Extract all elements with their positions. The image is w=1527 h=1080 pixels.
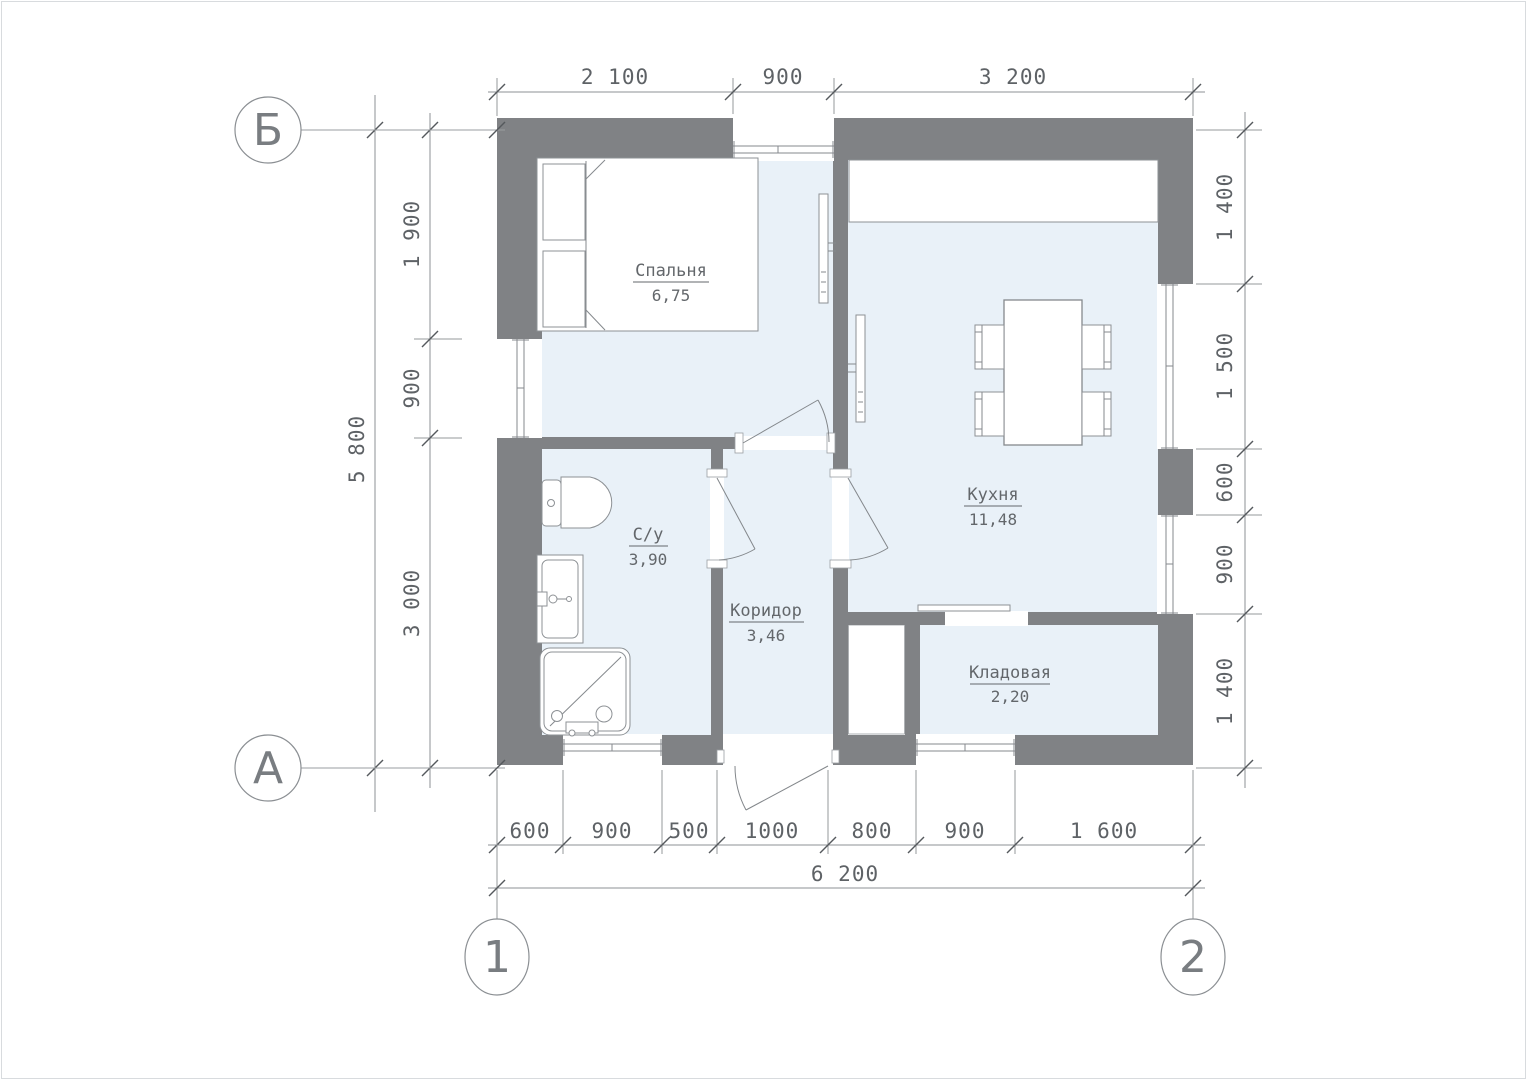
wall-closet-storage xyxy=(905,625,920,735)
dim-top-1: 2 100 xyxy=(581,65,649,89)
bed xyxy=(537,158,758,331)
corridor-area: 3,46 xyxy=(747,626,786,645)
toilet xyxy=(542,477,612,528)
bed-pillow xyxy=(543,164,585,240)
dim-bottom-total: 6 200 xyxy=(811,862,879,886)
window-left xyxy=(496,339,542,438)
chair xyxy=(975,325,1004,369)
entry-closet xyxy=(849,625,905,734)
floor-plan-canvas: Спальня 6,75 Кухня 11,48 С/у 3,90 Коридо… xyxy=(0,0,1527,1080)
kitchen-counter xyxy=(849,160,1158,222)
dim-bottom-5: 800 xyxy=(852,819,893,843)
grid-marker-col-left: 1 xyxy=(465,919,529,995)
bathroom-name: С/у xyxy=(633,525,664,545)
window-right-kitchen-small xyxy=(1157,515,1194,614)
grid-number-left: 1 xyxy=(483,932,511,983)
dining-table xyxy=(1004,300,1082,445)
window-top xyxy=(733,117,834,161)
window-right-kitchen-large xyxy=(1157,284,1194,449)
kitchen-area: 11,48 xyxy=(969,510,1017,529)
entrance-door xyxy=(717,734,839,810)
dim-bottom-4: 1000 xyxy=(745,819,800,843)
window-bottom-bathroom xyxy=(563,734,662,766)
chair xyxy=(1082,392,1111,436)
grid-marker-col-right: 2 xyxy=(1161,919,1225,995)
dim-left-1: 1 900 xyxy=(400,200,424,268)
dim-left-total: 5 800 xyxy=(345,415,369,483)
corridor-floor xyxy=(723,449,833,735)
bathroom-sink xyxy=(537,555,583,643)
bedroom-name: Спальня xyxy=(635,261,707,281)
dim-right-2: 1 500 xyxy=(1213,332,1237,400)
chair xyxy=(1082,325,1111,369)
grid-marker-row-top: Б xyxy=(235,97,505,163)
dimension-chain-left: 1 900 900 3 000 5 800 xyxy=(345,95,462,812)
dim-bottom-1: 600 xyxy=(510,819,551,843)
shower xyxy=(540,648,630,736)
dim-top-2: 900 xyxy=(763,65,804,89)
bed-pillow xyxy=(543,251,585,327)
storage-area: 2,20 xyxy=(991,687,1030,706)
grid-number-right: 2 xyxy=(1179,932,1207,983)
grid-letter-bottom: А xyxy=(253,743,283,794)
chair xyxy=(975,392,1004,436)
dim-bottom-3: 500 xyxy=(669,819,710,843)
kitchen-name: Кухня xyxy=(967,485,1018,505)
dimension-chain-top: 2 100 900 3 200 xyxy=(488,65,1205,116)
dim-bottom-2: 900 xyxy=(592,819,633,843)
dim-right-4: 900 xyxy=(1213,544,1237,585)
dim-right-5: 1 400 xyxy=(1213,657,1237,725)
dim-left-2: 900 xyxy=(400,368,424,409)
bathroom-area: 3,90 xyxy=(629,550,668,569)
storage-name: Кладовая xyxy=(969,663,1051,683)
corridor-name: Коридор xyxy=(730,601,802,621)
window-bottom-storage xyxy=(916,734,1015,766)
dim-top-3: 3 200 xyxy=(979,65,1047,89)
wall-top xyxy=(497,118,1193,160)
dim-right-3: 600 xyxy=(1213,462,1237,503)
dim-bottom-6: 900 xyxy=(945,819,986,843)
dimension-chain-right: 1 400 1 500 600 900 1 400 xyxy=(1196,112,1262,788)
bedroom-area: 6,75 xyxy=(652,286,691,305)
dimension-chain-bottom: 600 900 500 1000 800 900 1 600 xyxy=(488,770,1205,854)
wall-left xyxy=(497,118,542,765)
dim-right-1: 1 400 xyxy=(1213,173,1237,241)
dim-left-3: 3 000 xyxy=(400,569,424,637)
grid-marker-row-bottom: А xyxy=(235,735,505,801)
kitchen-floor xyxy=(848,160,1158,612)
dim-bottom-7: 1 600 xyxy=(1070,819,1138,843)
grid-letter-top: Б xyxy=(253,105,283,156)
